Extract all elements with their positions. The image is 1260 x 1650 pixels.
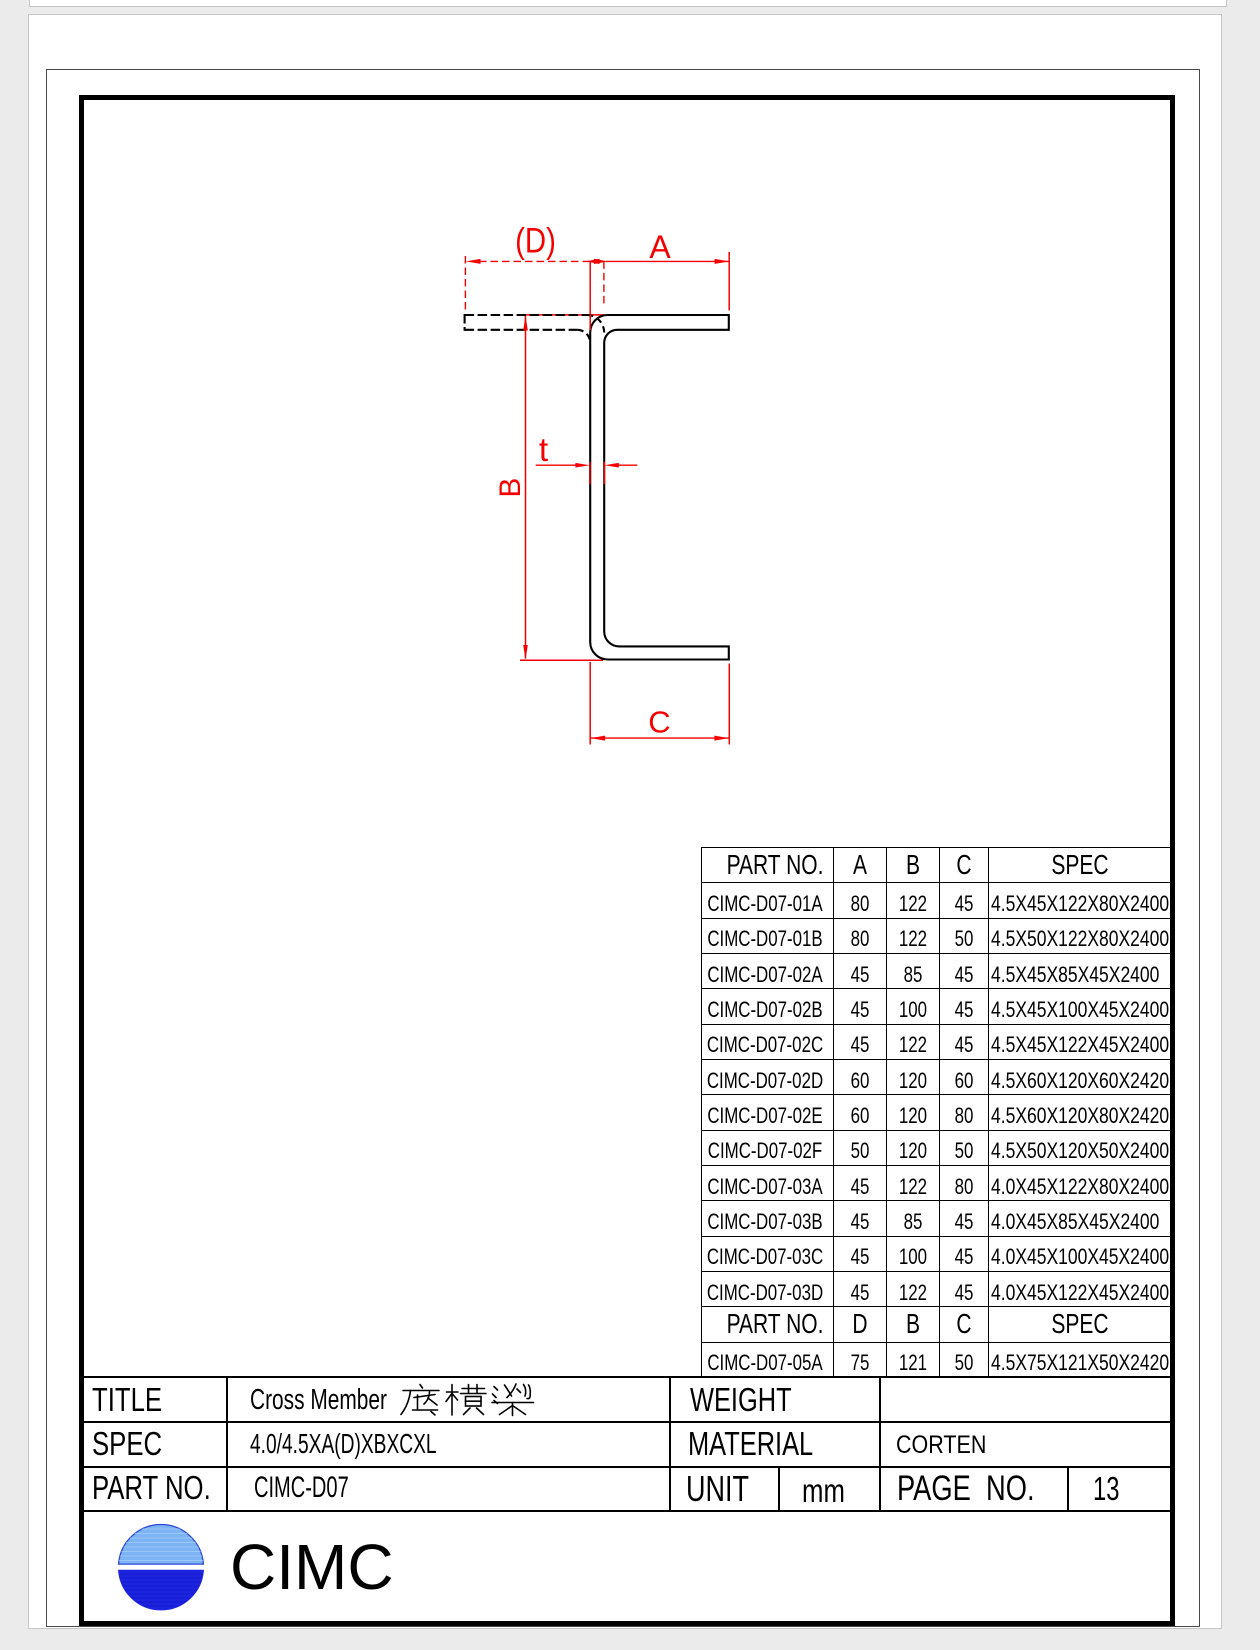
svg-text:(D): (D) xyxy=(515,221,556,260)
svg-text:C: C xyxy=(648,705,670,740)
svg-text:A: A xyxy=(649,229,671,265)
svg-text:B: B xyxy=(494,478,527,498)
svg-text:t: t xyxy=(539,432,549,469)
